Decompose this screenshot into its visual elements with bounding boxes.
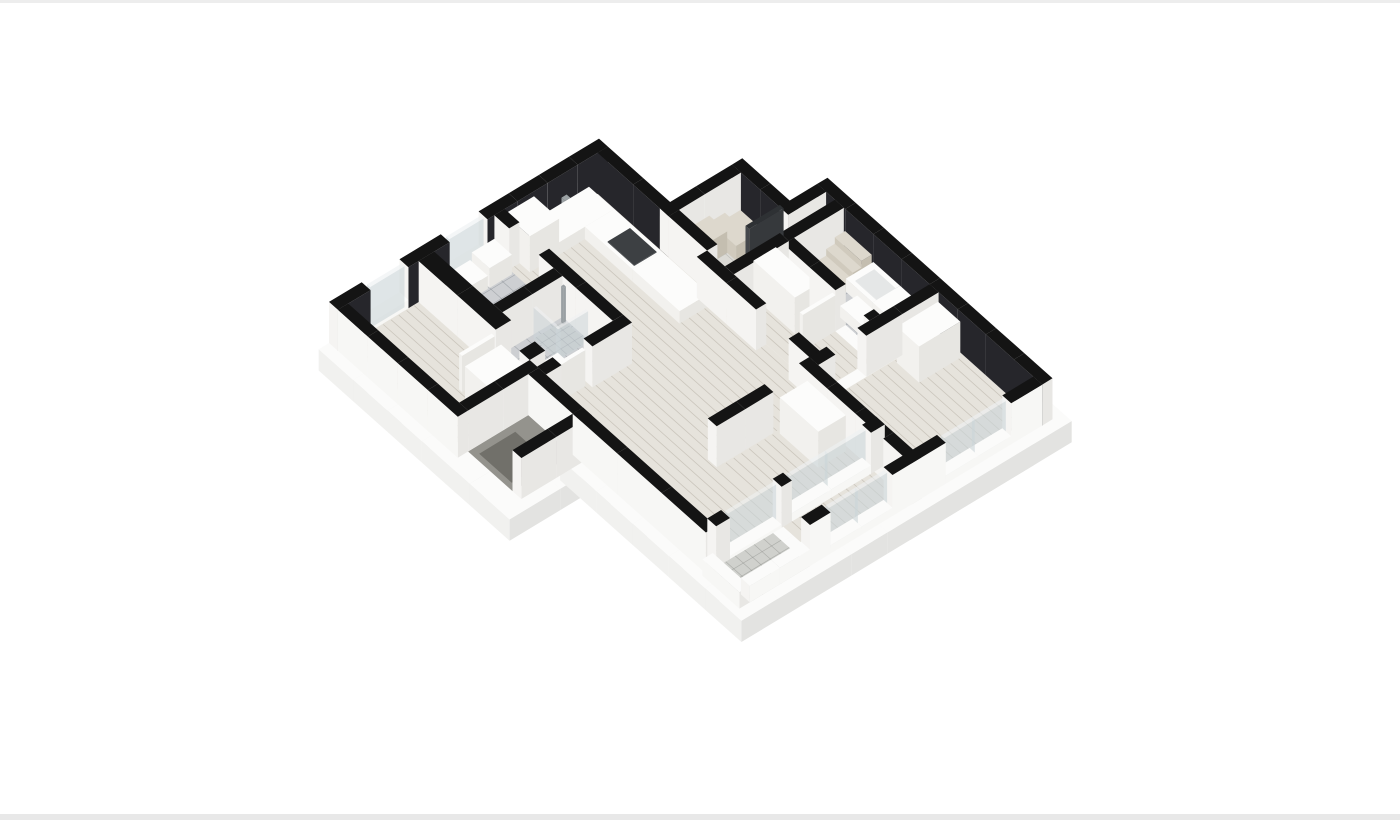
page-edge-bottom: [0, 814, 1400, 820]
shower-pole: [561, 285, 566, 325]
wall-ne-exterior-face-e: [1042, 378, 1052, 425]
wall-bed1-west-a-face-s: [857, 328, 866, 377]
shower-pole-face-e: [563, 287, 566, 325]
wall-sw-exterior-face-e: [458, 411, 468, 458]
shower-pole-face-s: [561, 286, 563, 324]
floor-plan-3d-render: [0, 0, 1400, 820]
page-edge-top: [0, 0, 1400, 3]
wall-living-se-a-face-e: [871, 424, 885, 473]
wall-living-se-b-face-e: [782, 481, 792, 528]
wall-bed2-west-face-s: [708, 418, 717, 467]
wall-pantry-west-face-s: [660, 208, 669, 257]
wall-porch-east-face-s: [513, 450, 522, 499]
wall-nw-left-c-face-s: [329, 302, 338, 351]
door-bed3-open-face-s: [459, 353, 462, 392]
wall-hall-south-a-face-e: [756, 303, 766, 350]
floor-plan-page: [0, 0, 1400, 820]
